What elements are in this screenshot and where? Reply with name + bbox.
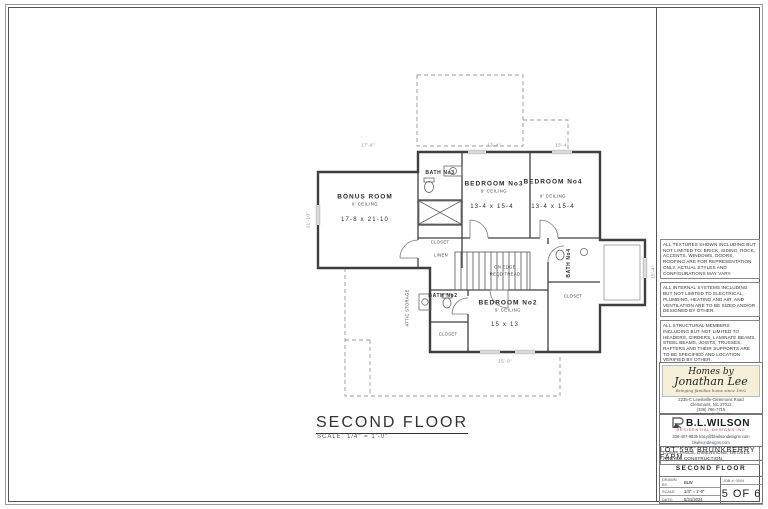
dim-left: 21'-10"	[306, 212, 311, 228]
scale-value: 1/4" = 1'-0"	[684, 489, 704, 494]
closet-label-2: CLOSET	[564, 294, 583, 299]
date-label: DATE:	[662, 497, 682, 502]
room-size-bonus: 17-8 x 21-10	[341, 217, 389, 223]
stairs-note-line2: REQD TREAD	[490, 272, 520, 277]
plan-scale: SCALE: 1/4" = 1'-0"	[317, 434, 388, 440]
dim-bottom: 15'-0"	[498, 359, 512, 364]
titleblock-fields-right: JOB #: 0004 5 OF 6	[721, 477, 762, 503]
note-structural: ALL STRUCTURAL MEMBERS INCLUDING BUT NOT…	[660, 320, 760, 366]
room-label-bath3: BATH No3	[425, 170, 454, 176]
note-textures: ALL TEXTURES SHOWN INCLUDING BUT NOT LIM…	[660, 239, 760, 279]
designer-contact: 336-407-9835 tracy@blwilsondesigns.com	[660, 434, 762, 439]
scale-row: SCALE: 1/4" = 1'-0"	[660, 488, 720, 496]
room-label-bedroom2: BEDROOM No2	[478, 300, 537, 307]
room-ceiling-bedroom3: 9' CEILING	[481, 189, 507, 194]
designer-logo-block: B.L.WILSON RESIDENTIAL DESIGNS INC 336-4…	[659, 414, 763, 447]
scale-label: SCALE:	[662, 489, 682, 494]
stairs-note-line1: ON EDGE	[494, 265, 515, 270]
job-value: 0004	[736, 479, 744, 483]
drawing-sheet: BONUS ROOM 9' CEILING 17-8 x 21-10 BATH …	[0, 0, 768, 509]
room-label-bonus: BONUS ROOM	[337, 194, 393, 201]
dim-right: 15'-4"	[651, 265, 656, 279]
drawn-by-value: BLW	[684, 480, 693, 485]
room-label-bath2: BATH No2	[428, 293, 457, 299]
designer-website: blwilsondesigns.com	[660, 440, 762, 445]
job-number: JOB #: 0004	[721, 478, 762, 485]
titleblock-fields: DRAWN BY: BLW SCALE: 1/4" = 1'-0" DATE: …	[659, 476, 763, 504]
note-systems: ALL INTERNAL SYSTEMS INCLUDING BUT NOT L…	[660, 282, 760, 317]
sheet-title: SECOND FLOOR	[659, 460, 763, 477]
room-size-bedroom3: 13-4 x 15-4	[470, 204, 514, 210]
room-label-bath4: BATH No4	[566, 248, 572, 277]
dim-top-mid: 13'-4"	[487, 143, 501, 148]
dim-top-left: 17'-8"	[361, 143, 375, 148]
titleblock-fields-left: DRAWN BY: BLW SCALE: 1/4" = 1'-0" DATE: …	[660, 477, 721, 503]
date-value: 5/31/2024	[684, 497, 703, 502]
sheet-number: 5 OF 6	[722, 485, 762, 503]
attic-storage-label: ATTIC STORAGE	[405, 289, 410, 326]
date-row: DATE: 5/31/2024	[660, 496, 720, 503]
linen-label: LINEN	[434, 253, 448, 258]
builder-logo-block: Homes by Jonathan Lee Bringing families …	[659, 362, 763, 414]
room-ceiling-bedroom4: 9' CEILING	[540, 194, 566, 199]
drawn-by-label: DRAWN BY:	[662, 477, 682, 487]
lot-title: LOT 596 BRUNKBERRY FARM	[659, 446, 763, 461]
closet-label-3: CLOSET	[439, 332, 458, 337]
homes-by-jonathan-lee-logo: Homes by Jonathan Lee Bringing families …	[662, 365, 760, 397]
room-label-bedroom4: BEDROOM No4	[523, 179, 582, 186]
job-label: JOB #:	[723, 479, 735, 483]
plan-title: SECOND FLOOR	[316, 414, 468, 434]
room-label-bedroom3: BEDROOM No3	[464, 181, 523, 188]
designer-name: B.L.WILSON	[686, 418, 750, 429]
room-ceiling-bedroom2: 9' CEILING	[495, 308, 521, 313]
closet-label-1: CLOSET	[431, 240, 450, 245]
logo-line2: Jonathan Lee	[663, 375, 759, 388]
logo-tagline: Bringing families home since 1992	[663, 388, 759, 393]
room-size-bedroom4: 13-4 x 15-4	[531, 204, 575, 210]
room-ceiling-bonus: 9' CEILING	[352, 202, 378, 207]
drawn-by-row: DRAWN BY: BLW	[660, 477, 720, 488]
room-size-bedroom2: 15 x 13	[491, 322, 519, 328]
dim-top-right: 13'-4"	[555, 143, 569, 148]
